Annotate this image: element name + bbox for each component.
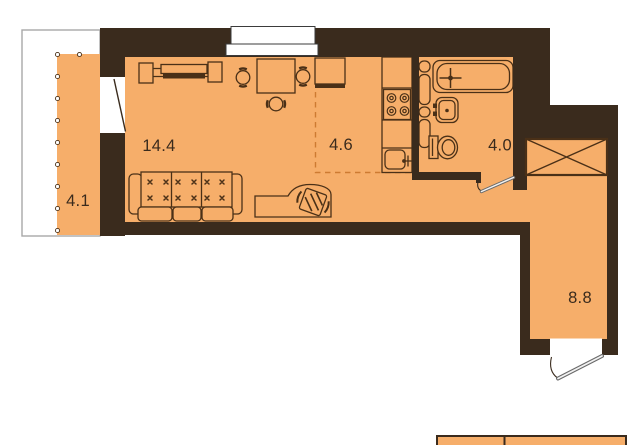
wall-hall-bottom-right	[602, 339, 618, 355]
bathroom-sink	[433, 98, 458, 123]
bathtub	[433, 61, 513, 93]
bathroom-sink-drain	[445, 109, 449, 113]
kitchen-faucet-knob	[402, 159, 406, 163]
toilet-tank	[429, 136, 438, 159]
wall-right	[607, 138, 618, 355]
kitchen-sink	[385, 150, 405, 169]
hallway-area-label: 8.8	[568, 289, 592, 307]
adjacent-unit-floor	[437, 436, 626, 445]
bathroom-sink-tap-2	[433, 112, 437, 117]
entrance-opening	[550, 339, 602, 356]
bench-bar	[163, 74, 205, 79]
sofa-back	[141, 172, 232, 207]
sofa-cushion-1	[138, 207, 172, 221]
towel-rail-seg-1	[419, 61, 430, 72]
window-outer	[231, 27, 315, 45]
wall-bath-door-jamb	[476, 172, 481, 183]
bench-right-plate	[208, 62, 222, 82]
window	[226, 27, 318, 56]
balcony-door	[100, 77, 126, 133]
bathroom-sink-tap-1	[433, 104, 437, 109]
balcony-area-label: 4.1	[66, 192, 90, 210]
sofa	[129, 172, 242, 221]
sofa-cushion-2	[173, 207, 201, 221]
wall-bottom	[100, 222, 530, 235]
floor-plan-page: 14.4 4.6 4.0 8.8 4.1	[0, 0, 640, 445]
bathroom-area-label: 4.0	[488, 137, 512, 155]
bathtub-faucet-center	[448, 76, 453, 81]
wall-kitchen-bath	[412, 57, 419, 180]
kitchen-area-label: 4.6	[329, 136, 353, 154]
adjacent-unit-strip	[437, 436, 626, 445]
window-sill	[226, 44, 318, 56]
kitchen-cabinet	[315, 58, 345, 84]
dining-table	[257, 59, 295, 93]
sofa-cushion-3	[202, 207, 233, 221]
kitchen-cabinet-edge	[315, 84, 345, 88]
towel-rail-seg-3	[419, 107, 430, 117]
floor-plan: 14.4 4.6 4.0 8.8 4.1	[0, 0, 640, 445]
bench-left-plate	[139, 63, 153, 83]
toilet	[429, 136, 458, 159]
towel-rail-seg-2	[419, 75, 430, 105]
wall-hall-bottom-left	[520, 339, 550, 355]
wall-bath-bottom	[419, 172, 478, 180]
wall-hall-left	[520, 235, 530, 355]
wall-top	[100, 28, 550, 57]
balcony-door-opening	[100, 77, 125, 133]
living-room-area-label: 14.4	[142, 137, 175, 155]
bench-pad	[161, 65, 207, 74]
